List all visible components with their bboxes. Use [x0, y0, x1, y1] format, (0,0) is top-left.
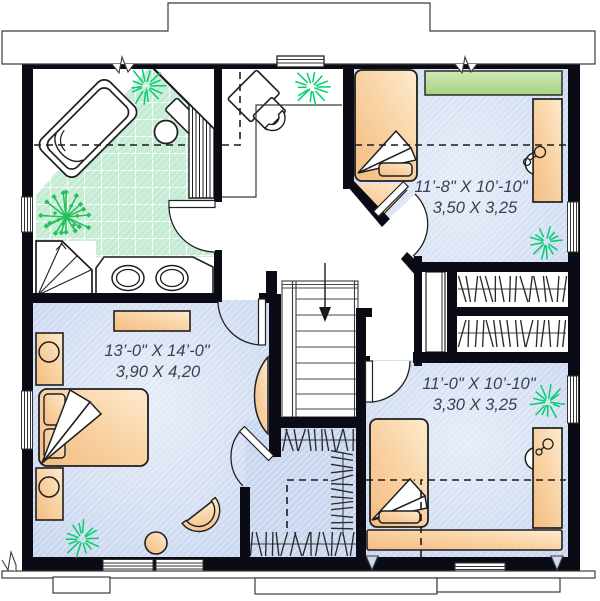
- svg-text:3,50 X 3,25: 3,50 X 3,25: [433, 199, 518, 217]
- svg-text:11’-8" X 10’-10": 11’-8" X 10’-10": [414, 178, 528, 196]
- svg-text:11’-0" X 10’-10": 11’-0" X 10’-10": [422, 375, 536, 393]
- svg-text:3,90 X 4,20: 3,90 X 4,20: [116, 363, 201, 381]
- svg-text:13’-0" X 14’-0": 13’-0" X 14’-0": [104, 342, 210, 360]
- svg-text:3,30 X 3,25: 3,30 X 3,25: [433, 396, 518, 414]
